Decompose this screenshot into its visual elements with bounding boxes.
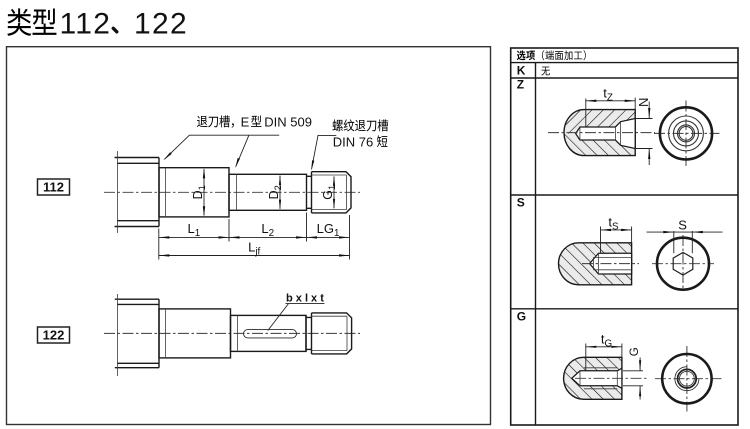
svg-text:DIN 509: DIN 509 bbox=[264, 114, 312, 129]
svg-text:S: S bbox=[678, 218, 687, 233]
svg-text:G: G bbox=[517, 310, 526, 324]
svg-text:E: E bbox=[241, 114, 250, 129]
svg-text:122: 122 bbox=[134, 8, 188, 41]
svg-text:112: 112 bbox=[60, 8, 112, 41]
svg-text:K: K bbox=[517, 64, 526, 78]
svg-text:Z: Z bbox=[517, 77, 524, 91]
svg-text:b x l x t: b x l x t bbox=[286, 293, 324, 305]
svg-text:122: 122 bbox=[43, 328, 65, 343]
svg-text:DIN 76: DIN 76 bbox=[333, 134, 373, 149]
svg-text:S: S bbox=[517, 196, 525, 210]
svg-text:112: 112 bbox=[43, 180, 64, 195]
svg-text:N: N bbox=[636, 98, 651, 107]
svg-text:G: G bbox=[629, 347, 641, 356]
